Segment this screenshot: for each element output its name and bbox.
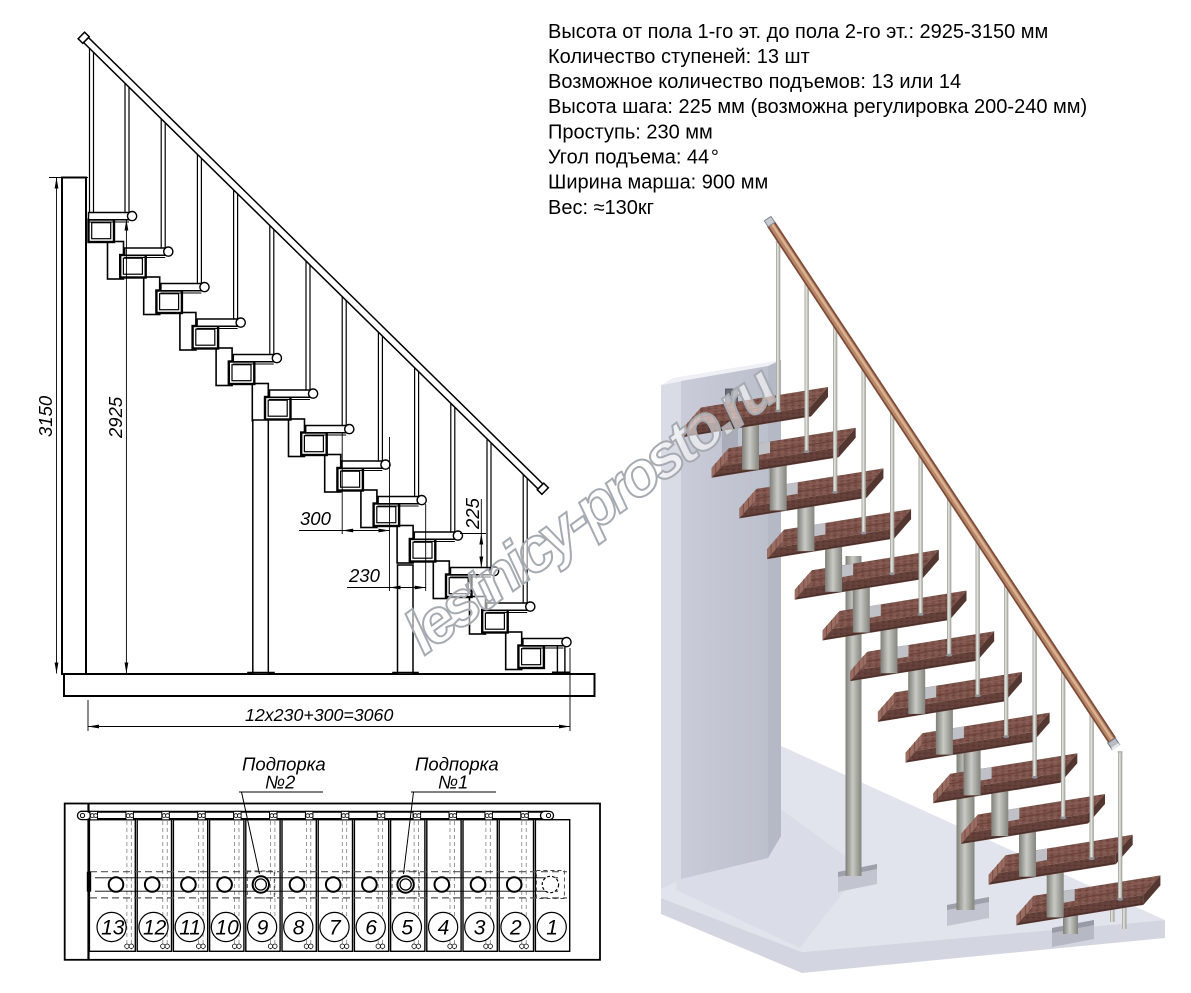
svg-text:1: 1 bbox=[546, 917, 558, 940]
svg-text:№1: №1 bbox=[438, 772, 468, 793]
svg-text:4: 4 bbox=[438, 917, 450, 940]
svg-text:230: 230 bbox=[348, 565, 381, 586]
svg-text:12: 12 bbox=[143, 917, 167, 940]
svg-text:8: 8 bbox=[293, 917, 305, 940]
svg-text:225: 225 bbox=[462, 497, 483, 530]
svg-text:11: 11 bbox=[179, 917, 201, 940]
svg-text:Возможное количество подъемов:: Возможное количество подъемов: 13 или 14 bbox=[548, 71, 961, 93]
svg-text:3150: 3150 bbox=[35, 395, 56, 437]
svg-text:12x230+300=3060: 12x230+300=3060 bbox=[245, 705, 393, 725]
svg-text:Высота от пола 1-го эт. до пол: Высота от пола 1-го эт. до пола 2-го эт.… bbox=[548, 21, 1048, 43]
svg-text:2: 2 bbox=[509, 917, 522, 940]
svg-text:3: 3 bbox=[474, 917, 486, 940]
svg-text:9: 9 bbox=[257, 917, 269, 940]
svg-text:5: 5 bbox=[401, 917, 413, 940]
svg-text:Угол подъема: 44 °: Угол подъема: 44 ° bbox=[548, 147, 719, 169]
svg-text:6: 6 bbox=[365, 917, 377, 940]
svg-text:Проступь: 230 мм: Проступь: 230 мм bbox=[548, 121, 713, 143]
svg-text:Количество ступеней: 13 шт: Количество ступеней: 13 шт bbox=[548, 46, 810, 68]
svg-text:Вес: ≈130кг: Вес: ≈130кг bbox=[548, 197, 654, 219]
svg-text:№2: №2 bbox=[265, 772, 296, 793]
svg-text:Высота шага: 225 мм (возможна: Высота шага: 225 мм (возможна регулировк… bbox=[548, 96, 1087, 118]
svg-text:10: 10 bbox=[215, 917, 239, 940]
svg-text:2925: 2925 bbox=[105, 396, 126, 439]
svg-text:13: 13 bbox=[101, 917, 125, 940]
svg-text:7: 7 bbox=[329, 917, 342, 940]
svg-text:300: 300 bbox=[300, 508, 332, 529]
svg-text:Ширина марша: 900 мм: Ширина марша: 900 мм bbox=[548, 172, 768, 194]
